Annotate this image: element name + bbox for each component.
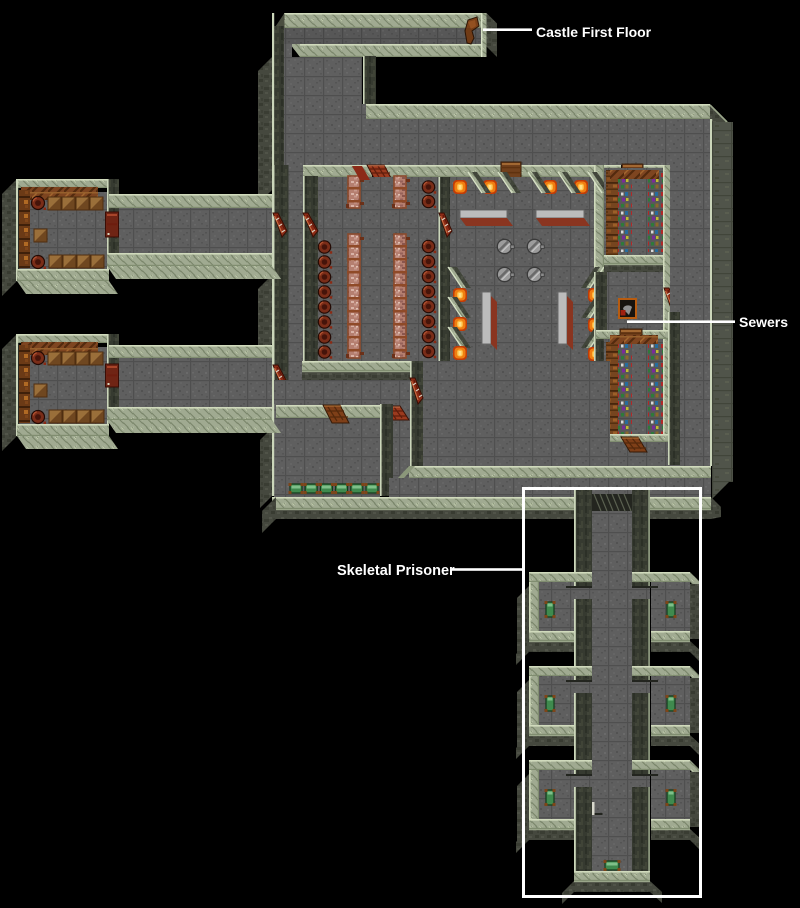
- svg-text:Skeletal Prisoner: Skeletal Prisoner: [337, 563, 455, 579]
- svg-text:Castle First Floor: Castle First Floor: [536, 24, 652, 40]
- svg-text:Sewers: Sewers: [739, 314, 788, 330]
